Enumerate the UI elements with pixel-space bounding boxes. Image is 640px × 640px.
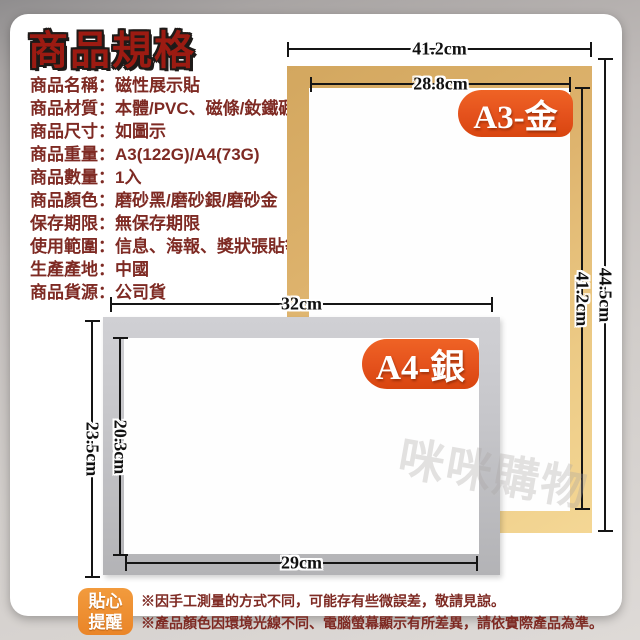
page-title: 商品規格	[28, 18, 196, 76]
a3-inner-height-line: 41.2cm	[581, 87, 583, 510]
a3-gold-size-badge: A3-金	[458, 90, 573, 137]
reminder-badge-line1: 貼心	[89, 591, 123, 612]
a4-outer-height-line: 23.5cm	[91, 320, 93, 578]
spec-colon: ：	[98, 99, 115, 118]
a3-inner-height-label: 41.2cm	[572, 271, 593, 325]
spec-label: 商品尺寸	[30, 122, 98, 141]
spec-colon: ：	[98, 145, 115, 164]
spec-value: A3(122G)/A4(73G)	[115, 145, 260, 164]
spec-label: 商品數量	[30, 168, 98, 187]
spec-label: 生產產地	[30, 260, 98, 279]
a3-outer-width-label: 41.2cm	[412, 39, 466, 60]
spec-colon: ：	[98, 237, 115, 256]
spec-row-source: 商品貨源：公司貨	[30, 281, 302, 304]
reminder-badge-line2: 提醒	[89, 612, 123, 633]
spec-colon: ：	[98, 283, 115, 302]
a3-inner-width-label: 28.8cm	[413, 74, 467, 95]
a3-outer-height-line: 44.5cm	[604, 58, 606, 532]
spec-colon: ：	[98, 191, 115, 210]
spec-row-size: 商品尺寸：如圖示	[30, 120, 302, 143]
a4-outer-width-line: 32cm	[110, 303, 493, 305]
reminder-note-2: ※產品顏色因環境光線不同、電腦螢幕顯示有所差異，請依實際產品為準。	[141, 612, 603, 634]
reminder-notes: ※因手工測量的方式不同，可能存有些微誤差，敬請見諒。 ※產品顏色因環境光線不同、…	[141, 588, 603, 635]
a3-badge-label: A3-金	[473, 90, 557, 138]
spec-colon: ：	[98, 168, 115, 187]
spec-list: 商品名稱：磁性展示貼 商品材質：本體/PVC、磁條/釹鐵硼 商品尺寸：如圖示 商…	[30, 74, 302, 304]
spec-value: 磨砂黑/磨砂銀/磨砂金	[115, 191, 277, 210]
spec-row-usage: 使用範圍：信息、海報、獎狀張貼等	[30, 235, 302, 258]
spec-row-color: 商品顏色：磨砂黑/磨砂銀/磨砂金	[30, 189, 302, 212]
a4-outer-width-label: 32cm	[281, 294, 322, 315]
spec-value: 如圖示	[115, 122, 166, 141]
spec-label: 保存期限	[30, 214, 98, 233]
a4-inner-width-line: 29cm	[125, 562, 478, 564]
spec-colon: ：	[98, 76, 115, 95]
spec-row-material: 商品材質：本體/PVC、磁條/釹鐵硼	[30, 97, 302, 120]
a4-badge-label: A4-銀	[376, 339, 465, 390]
a3-outer-height-label: 44.5cm	[595, 268, 616, 322]
a4-silver-size-badge: A4-銀	[362, 339, 479, 389]
spec-value: 中國	[115, 260, 149, 279]
spec-row-shelf-life: 保存期限：無保存期限	[30, 212, 302, 235]
spec-label: 使用範圍	[30, 237, 98, 256]
spec-row-quantity: 商品數量：1入	[30, 166, 302, 189]
a4-inner-height-line: 20.3cm	[119, 337, 121, 556]
spec-label: 商品顏色	[30, 191, 98, 210]
spec-colon: ：	[98, 214, 115, 233]
reminder-note-1: ※因手工測量的方式不同，可能存有些微誤差，敬請見諒。	[141, 590, 603, 612]
a4-outer-height-label: 23.5cm	[82, 422, 103, 476]
reminder-badge: 貼心 提醒	[78, 588, 133, 635]
spec-value: 磁性展示貼	[115, 76, 200, 95]
spec-label: 商品名稱	[30, 76, 98, 95]
spec-value: 本體/PVC、磁條/釹鐵硼	[115, 99, 295, 118]
spec-value: 信息、海報、獎狀張貼等	[115, 237, 302, 256]
spec-value: 無保存期限	[115, 214, 200, 233]
spec-colon: ：	[98, 260, 115, 279]
spec-row-name: 商品名稱：磁性展示貼	[30, 74, 302, 97]
spec-label: 商品貨源	[30, 283, 98, 302]
spec-label: 商品材質	[30, 99, 98, 118]
a3-inner-width-line: 28.8cm	[310, 83, 571, 85]
spec-label: 商品重量	[30, 145, 98, 164]
spec-value: 公司貨	[115, 283, 166, 302]
a4-inner-width-label: 29cm	[281, 553, 322, 574]
spec-row-origin: 生產產地：中國	[30, 258, 302, 281]
spec-value: 1入	[115, 168, 141, 187]
product-spec-image: 商品規格 商品名稱：磁性展示貼 商品材質：本體/PVC、磁條/釹鐵硼 商品尺寸：…	[0, 0, 640, 640]
a3-outer-width-line: 41.2cm	[287, 48, 592, 50]
spec-colon: ：	[98, 122, 115, 141]
spec-row-weight: 商品重量：A3(122G)/A4(73G)	[30, 143, 302, 166]
reminder-section: 貼心 提醒 ※因手工測量的方式不同，可能存有些微誤差，敬請見諒。 ※產品顏色因環…	[78, 588, 603, 635]
a4-inner-height-label: 20.3cm	[110, 419, 131, 473]
